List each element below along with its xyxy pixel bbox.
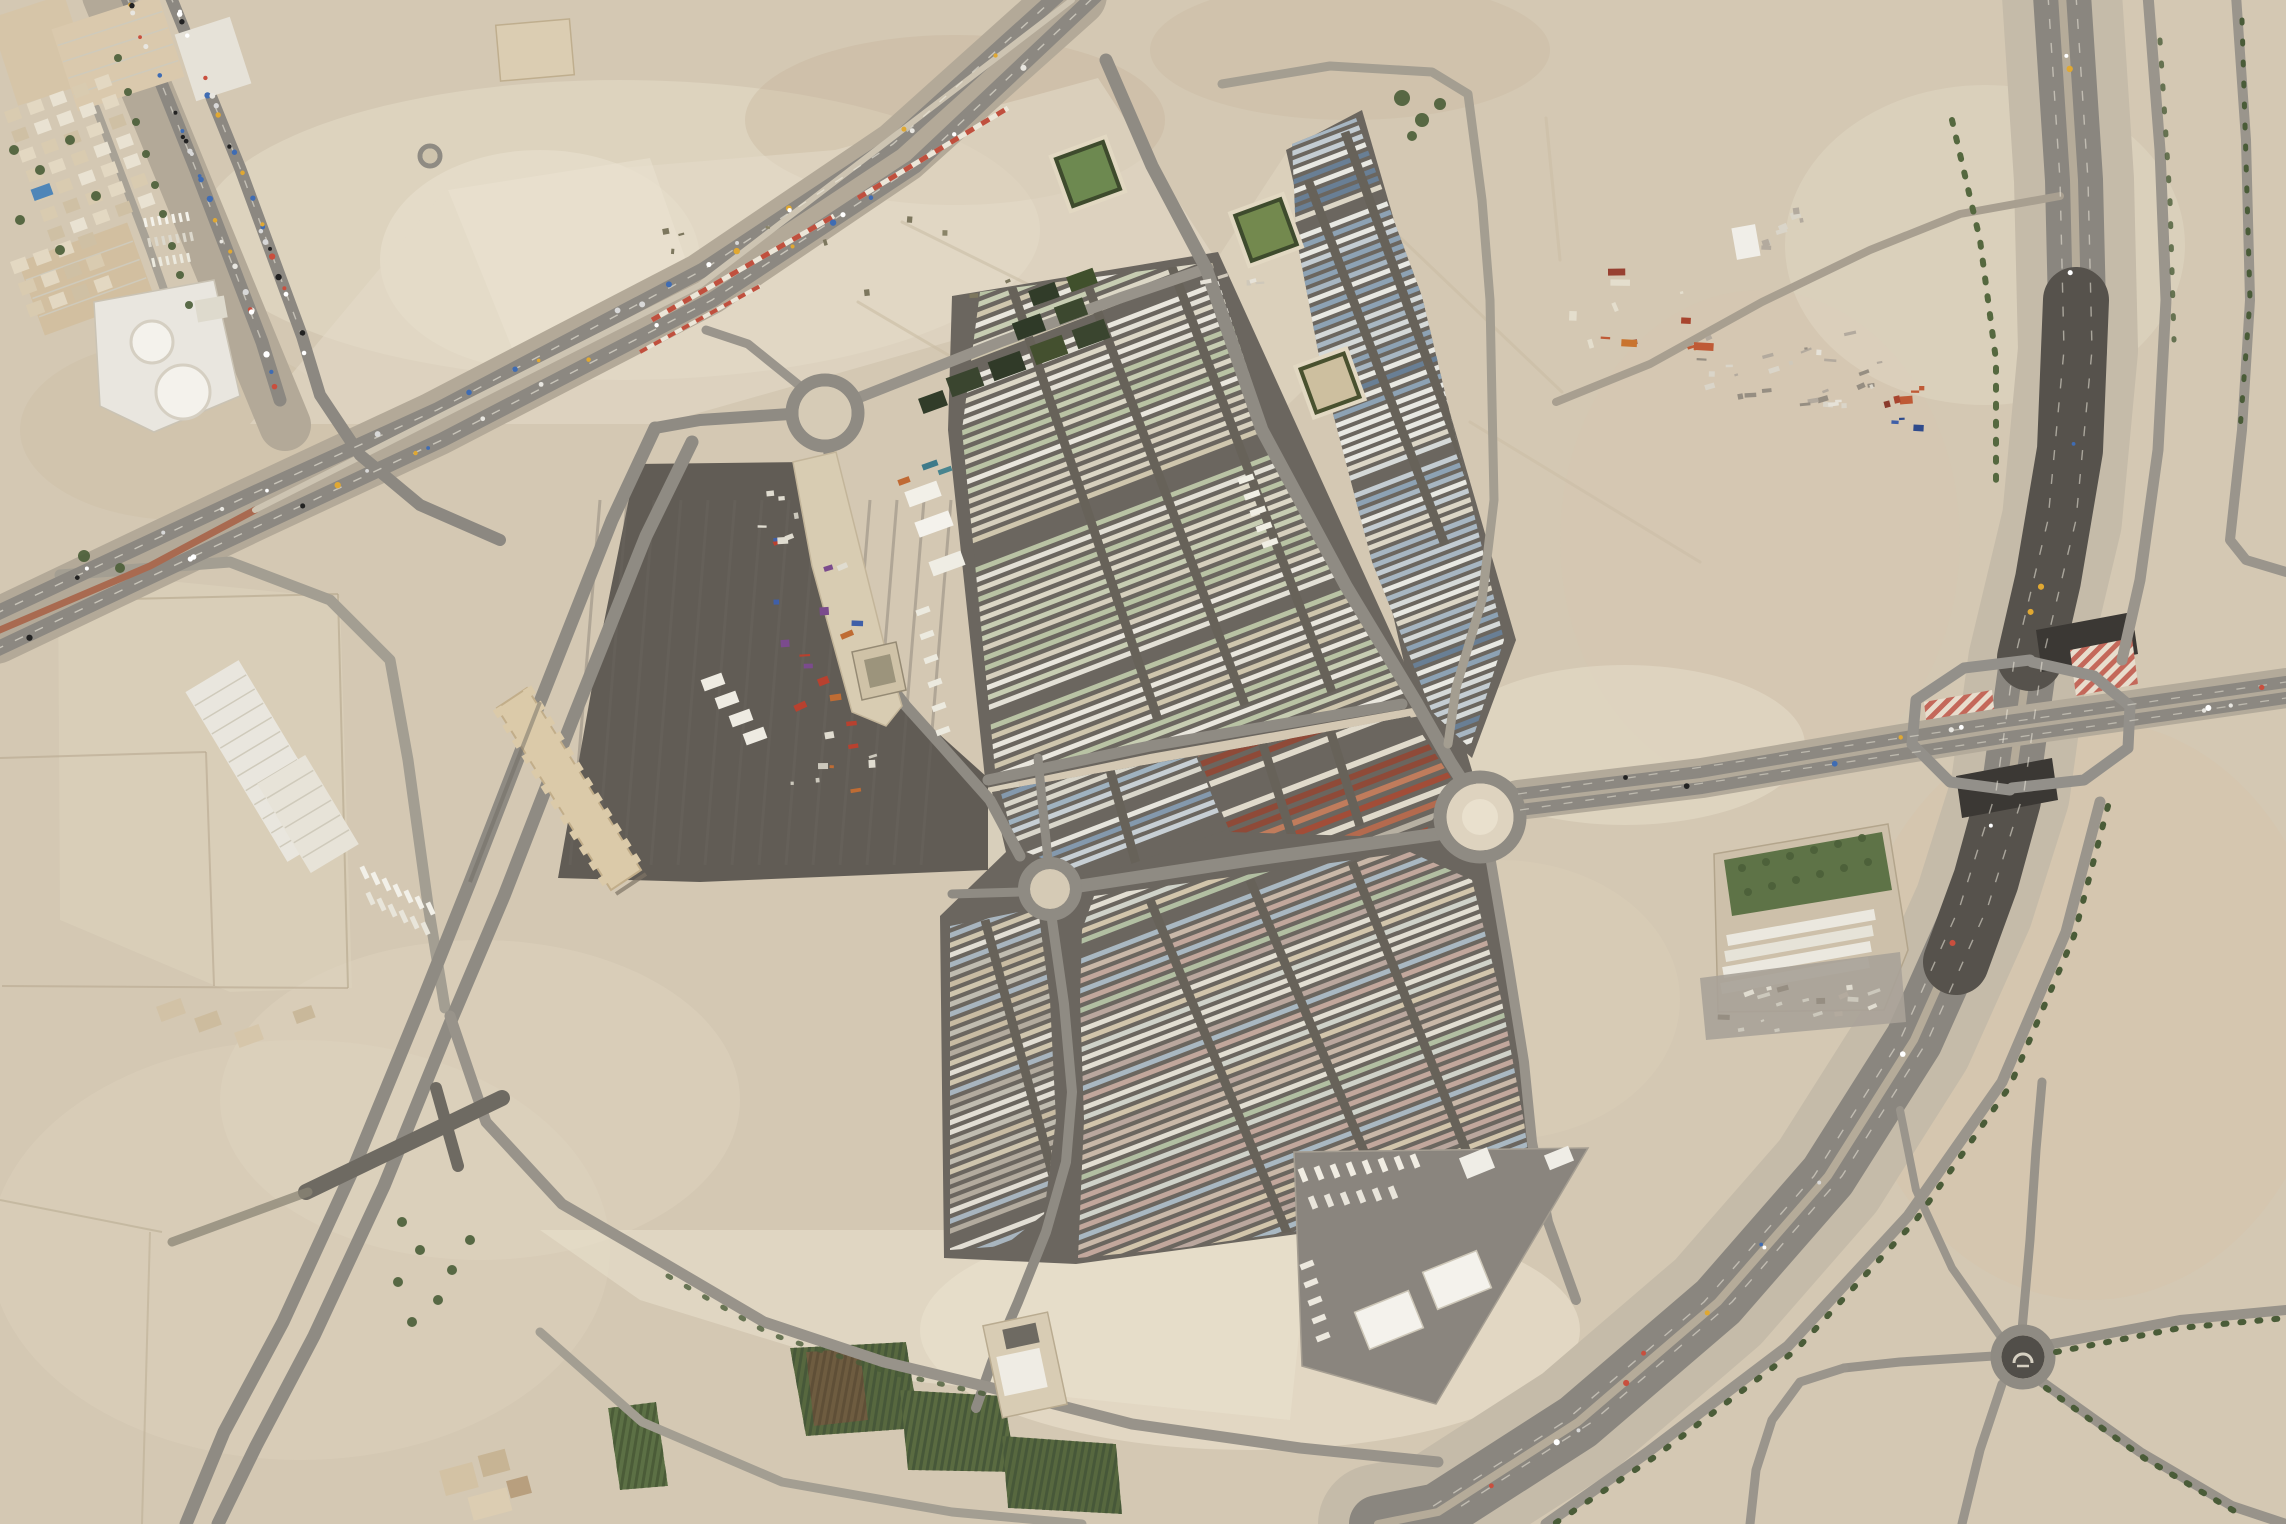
roundabout-southeast <box>1996 1330 2050 1384</box>
satellite-image <box>0 0 2286 1524</box>
scene-svg <box>0 0 2286 1524</box>
roundabout-east <box>1440 777 1520 857</box>
roundabout-west <box>792 380 858 446</box>
roundabout-center <box>1024 863 1076 915</box>
mini-circle <box>420 146 440 166</box>
